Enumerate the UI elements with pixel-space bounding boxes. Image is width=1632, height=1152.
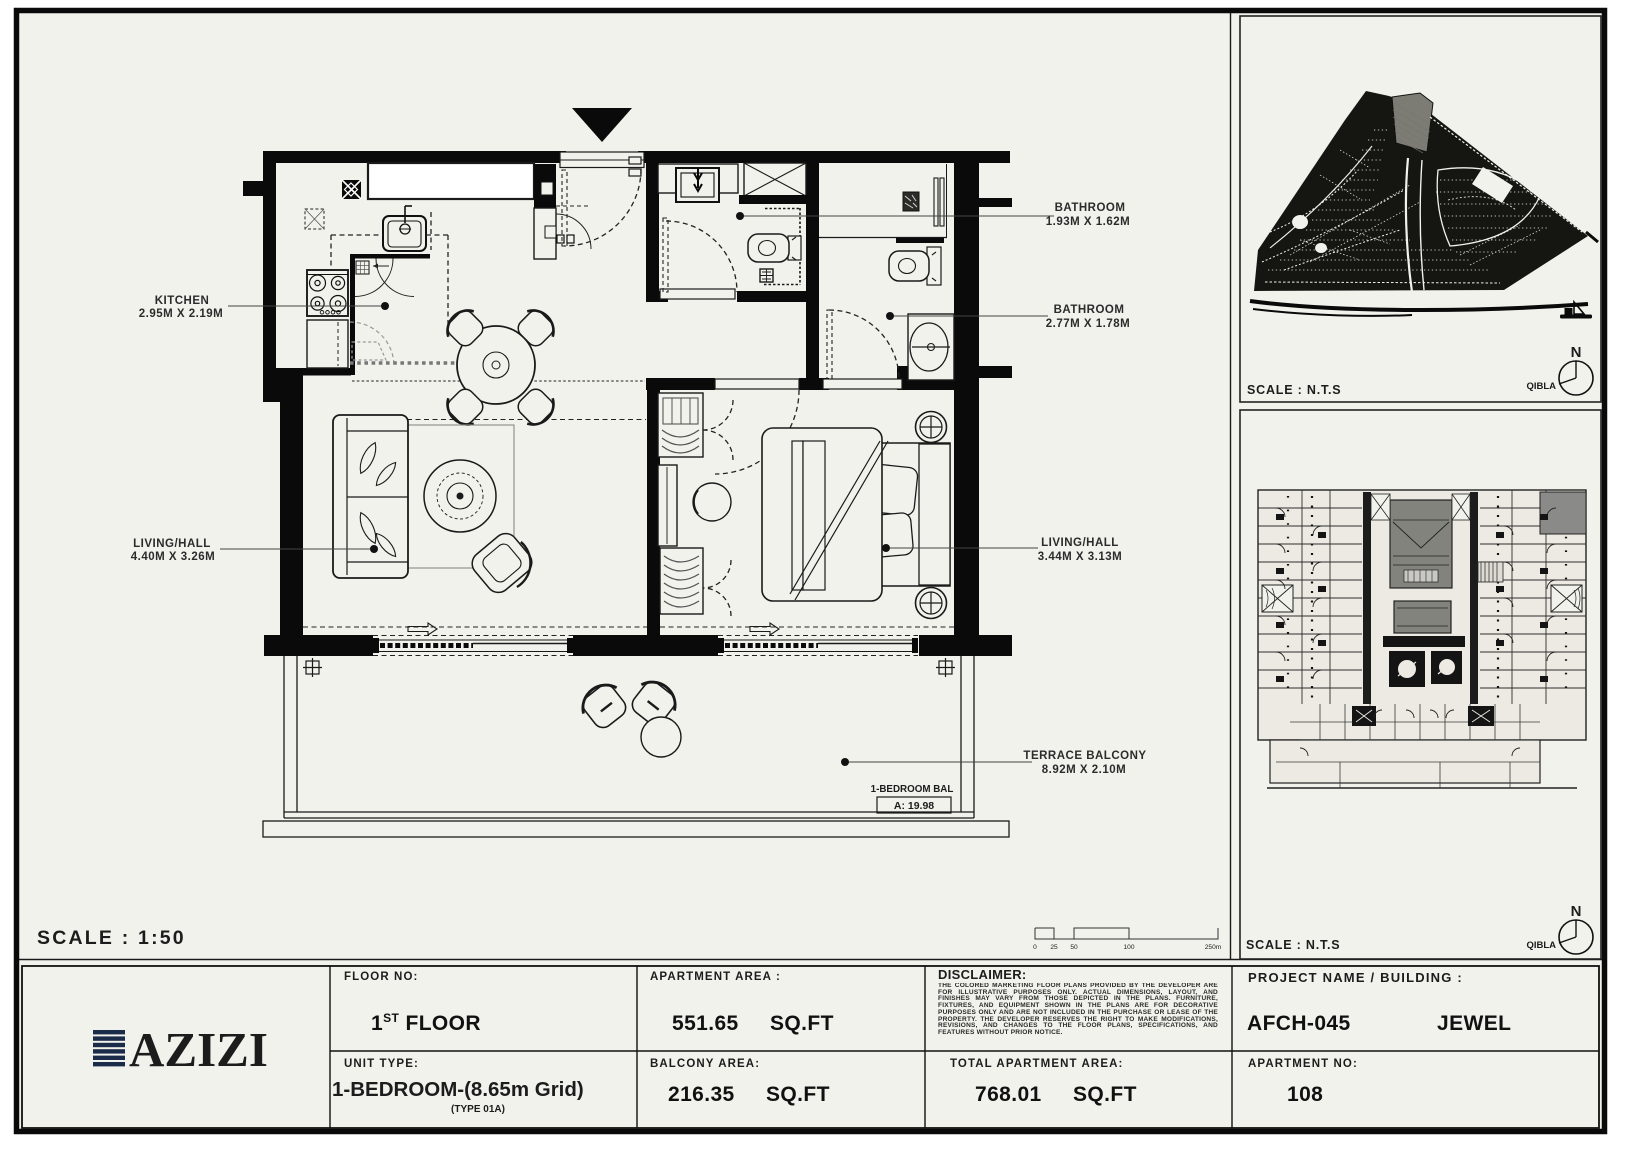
svg-text:1.93M X 1.62M: 1.93M X 1.62M — [1046, 216, 1130, 228]
svg-text:LIVING/HALL: LIVING/HALL — [133, 538, 211, 550]
svg-text:0: 0 — [1033, 944, 1037, 951]
svg-text:AFCH-045: AFCH-045 — [1247, 1012, 1351, 1035]
svg-text:QIBLA: QIBLA — [1526, 940, 1556, 951]
svg-text:2.77M X 1.78M: 2.77M X 1.78M — [1046, 318, 1130, 330]
svg-text:PROJECT NAME / BUILDING :: PROJECT NAME / BUILDING : — [1248, 970, 1463, 985]
svg-text:216.35: 216.35 — [668, 1083, 735, 1106]
svg-text:LIVING/HALL: LIVING/HALL — [1041, 537, 1119, 549]
svg-text:JEWEL: JEWEL — [1437, 1012, 1511, 1035]
svg-text:TERRACE BALCONY: TERRACE BALCONY — [1023, 750, 1146, 762]
svg-text:1-BEDROOM-(8.65m Grid): 1-BEDROOM-(8.65m Grid) — [332, 1078, 584, 1101]
svg-text:N: N — [1571, 344, 1582, 361]
svg-text:BALCONY AREA:: BALCONY AREA: — [650, 1058, 760, 1070]
svg-text:25: 25 — [1050, 944, 1058, 951]
svg-text:N: N — [1571, 903, 1582, 920]
svg-text:AZIZI: AZIZI — [129, 1022, 268, 1077]
svg-text:QIBLA: QIBLA — [1526, 381, 1556, 392]
svg-text:4.40M X 3.26M: 4.40M X 3.26M — [131, 551, 215, 563]
svg-text:FLOOR NO:: FLOOR NO: — [344, 971, 418, 983]
svg-text:APARTMENT NO:: APARTMENT NO: — [1248, 1058, 1358, 1070]
svg-text:KITCHEN: KITCHEN — [155, 295, 210, 307]
svg-text:50: 50 — [1070, 944, 1078, 951]
svg-text:551.65: 551.65 — [672, 1012, 739, 1035]
svg-text:SQ.FT: SQ.FT — [766, 1083, 830, 1106]
svg-text:8.92M X 2.10M: 8.92M X 2.10M — [1042, 764, 1126, 776]
svg-text:SQ.FT: SQ.FT — [770, 1012, 834, 1035]
svg-text:3.44M X 3.13M: 3.44M X 3.13M — [1038, 551, 1122, 563]
svg-text:A: 19.98: A: 19.98 — [894, 800, 934, 812]
svg-text:108: 108 — [1287, 1083, 1323, 1106]
svg-text:DISCLAIMER:: DISCLAIMER: — [938, 967, 1027, 982]
svg-text:UNIT TYPE:: UNIT TYPE: — [344, 1058, 419, 1070]
svg-text:1-BEDROOM BAL: 1-BEDROOM BAL — [871, 784, 954, 795]
svg-text:768.01: 768.01 — [975, 1083, 1042, 1106]
svg-text:SCALE : 1:50: SCALE : 1:50 — [37, 927, 186, 949]
svg-text:SQ.FT: SQ.FT — [1073, 1083, 1137, 1106]
svg-text:100: 100 — [1123, 944, 1134, 951]
svg-text:(TYPE 01A): (TYPE 01A) — [451, 1104, 505, 1115]
svg-text:250m: 250m — [1205, 944, 1222, 951]
svg-text:BATHROOM: BATHROOM — [1054, 304, 1125, 316]
svg-text:BATHROOM: BATHROOM — [1055, 202, 1126, 214]
svg-text:2.95M X 2.19M: 2.95M X 2.19M — [139, 308, 223, 320]
svg-text:SCALE : N.T.S: SCALE : N.T.S — [1246, 938, 1340, 952]
svg-text:TOTAL APARTMENT AREA:: TOTAL APARTMENT AREA: — [950, 1058, 1123, 1070]
svg-text:SCALE : N.T.S: SCALE : N.T.S — [1247, 383, 1341, 397]
svg-text:APARTMENT AREA :: APARTMENT AREA : — [650, 971, 781, 983]
